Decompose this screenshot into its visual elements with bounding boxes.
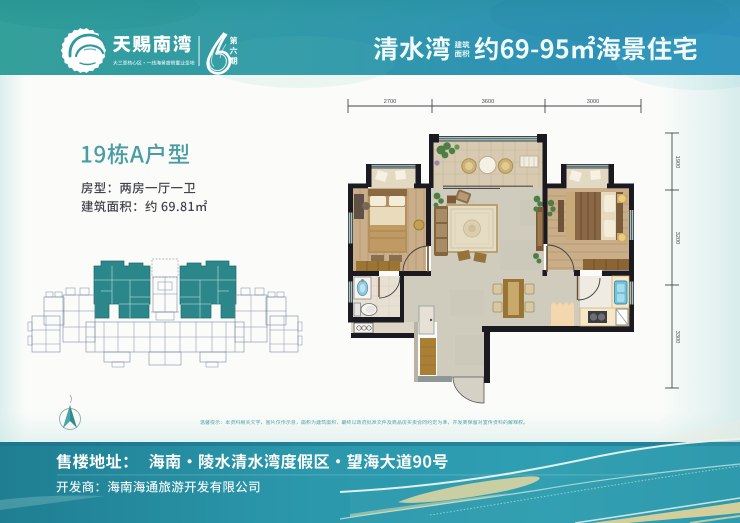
svg-text:3200: 3200 xyxy=(674,232,680,244)
svg-text:3300: 3300 xyxy=(674,331,680,343)
svg-text:2700: 2700 xyxy=(384,99,396,105)
svg-text:3000: 3000 xyxy=(587,99,599,105)
svg-text:3600: 3600 xyxy=(482,99,494,105)
svg-text:1900: 1900 xyxy=(674,156,680,168)
